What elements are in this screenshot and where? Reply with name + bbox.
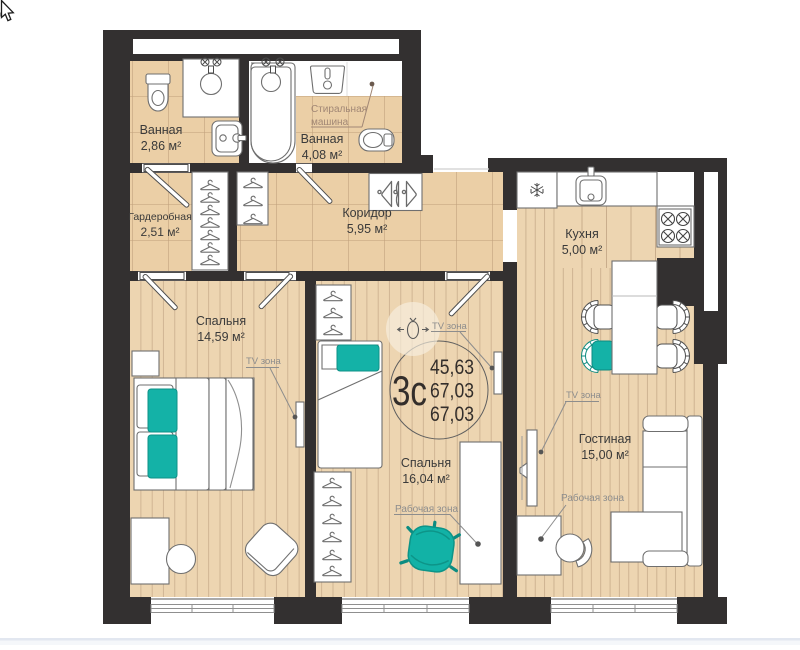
svg-text:67,03: 67,03 bbox=[430, 402, 474, 426]
svg-text:Спальня: Спальня bbox=[196, 314, 246, 328]
svg-text:16,04 м²: 16,04 м² bbox=[402, 472, 450, 486]
svg-text:67,03: 67,03 bbox=[430, 379, 474, 403]
svg-text:Стиральная: Стиральная bbox=[311, 104, 367, 115]
svg-text:2,86 м²: 2,86 м² bbox=[141, 139, 182, 153]
svg-text:Рабочая зона: Рабочая зона bbox=[561, 492, 624, 504]
svg-text:TV зона: TV зона bbox=[246, 356, 282, 367]
svg-text:Ванная: Ванная bbox=[140, 123, 183, 137]
svg-text:Кухня: Кухня bbox=[565, 227, 598, 241]
svg-text:15,00 м²: 15,00 м² bbox=[581, 448, 629, 462]
svg-text:Гостиная: Гостиная bbox=[579, 432, 631, 446]
svg-text:2,51 м²: 2,51 м² bbox=[141, 225, 180, 239]
svg-text:машина: машина bbox=[311, 117, 349, 128]
svg-text:TV зона: TV зона bbox=[432, 321, 468, 332]
svg-text:5,95 м²: 5,95 м² bbox=[347, 222, 388, 236]
svg-text:Гардеробная: Гардеробная bbox=[128, 211, 192, 223]
svg-text:3с: 3с bbox=[392, 367, 427, 414]
svg-text:Коридор: Коридор bbox=[342, 206, 391, 220]
svg-text:14,59 м²: 14,59 м² bbox=[197, 330, 245, 344]
svg-text:45,63: 45,63 bbox=[430, 355, 474, 379]
svg-text:5,00 м²: 5,00 м² bbox=[562, 243, 603, 257]
svg-text:4,08 м²: 4,08 м² bbox=[302, 148, 343, 162]
svg-text:Ванная: Ванная bbox=[301, 132, 344, 146]
svg-text:Рабочая зона: Рабочая зона bbox=[395, 503, 458, 515]
svg-text:TV зона: TV зона bbox=[566, 390, 602, 401]
svg-text:Спальня: Спальня bbox=[401, 456, 451, 470]
